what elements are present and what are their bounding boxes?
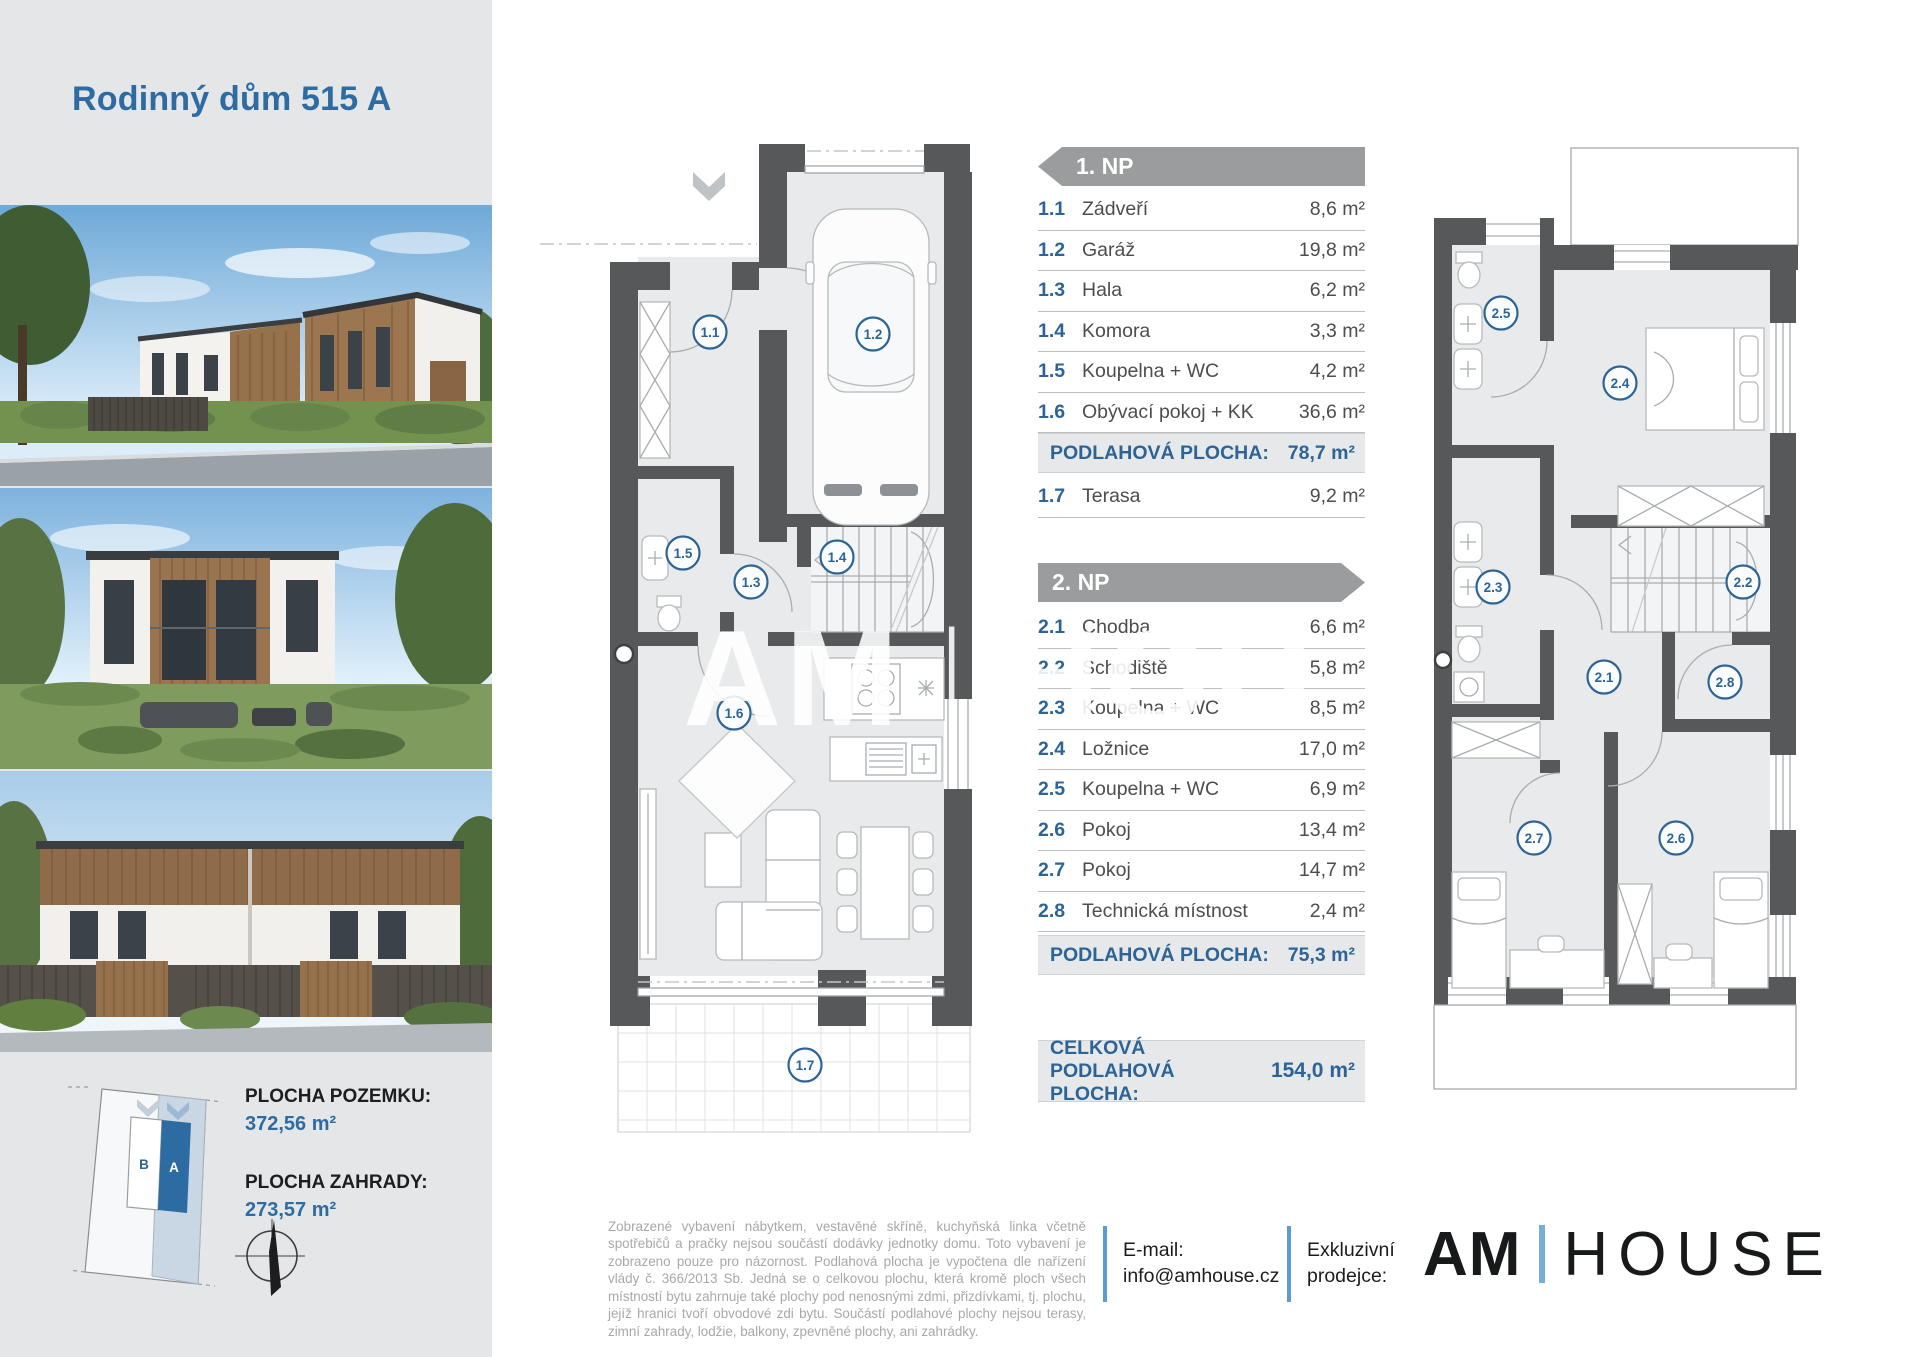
floor2-rows: 2.1Chodba6,6 m² 2.2Schodiště5,8 m² 2.3Ko…	[1038, 608, 1365, 932]
svg-text:1.2: 1.2	[864, 327, 883, 342]
svg-text:2.5: 2.5	[1492, 306, 1511, 321]
table-row: 2.5Koupelna + WC6,9 m²	[1038, 770, 1365, 811]
garden-area-value: 273,57 m²	[245, 1199, 336, 1222]
svg-text:2.6: 2.6	[1667, 831, 1686, 846]
svg-text:2.3: 2.3	[1484, 580, 1503, 595]
email-value: info@amhouse.cz	[1123, 1264, 1279, 1290]
room-badge: 1.6	[718, 697, 751, 730]
svg-text:2.4: 2.4	[1611, 376, 1630, 391]
table-row: 2.6Pokoj13,4 m²	[1038, 811, 1365, 852]
room-badge: 1.7	[789, 1049, 822, 1082]
table-row: 2.7Pokoj14,7 m²	[1038, 851, 1365, 892]
room-badge: 1.5	[667, 537, 700, 570]
floor2-total-row: PODLAHOVÁ PLOCHA: 75,3 m²	[1038, 935, 1365, 975]
svg-text:1.6: 1.6	[725, 706, 744, 721]
logo-house-text: HOUSE	[1563, 1219, 1833, 1290]
floor2-banner: 2. NP	[1038, 563, 1365, 602]
room-badge: 1.2	[857, 318, 890, 351]
table-row: 1.2Garáž19,8 m²	[1038, 231, 1365, 272]
email-block: E-mail: info@amhouse.cz	[1103, 1226, 1279, 1302]
chevron-down-icon	[693, 172, 725, 201]
room-badge: 1.1	[694, 316, 727, 349]
floor1-rows: 1.1Zádveří8,6 m² 1.2Garáž19,8 m² 1.3Hala…	[1038, 190, 1365, 433]
svg-text:1.3: 1.3	[742, 575, 761, 590]
room-badge: 2.3	[1477, 571, 1510, 604]
floor-plan-1-drawing: 1.1 1.2 1.3 1.4 1.5 1.6 1.7	[498, 112, 1016, 1152]
table-row: 1.3Hala6,2 m²	[1038, 271, 1365, 312]
table-row: 1.6Obývací pokoj + KK36,6 m²	[1038, 393, 1365, 434]
svg-text:2.1: 2.1	[1595, 670, 1614, 685]
table-row: 2.2Schodiště5,8 m²	[1038, 649, 1365, 690]
svg-text:1.1: 1.1	[701, 325, 720, 340]
floor1-banner-label: 1. NP	[1076, 153, 1134, 180]
logo-am-text: AM	[1423, 1219, 1521, 1290]
room-badge: 1.3	[735, 566, 768, 599]
disclaimer-text: Zobrazené vybavení nábytkem, vestavěné s…	[608, 1218, 1086, 1340]
room-badge: 2.2	[1727, 566, 1760, 599]
floor-plan-2-drawing: 2.1 2.2 2.3 2.4 2.5 2.6 2.7 2.8	[1426, 112, 1820, 1112]
compass-icon	[235, 1219, 305, 1296]
svg-text:1.4: 1.4	[828, 550, 847, 565]
svg-text:1.5: 1.5	[674, 546, 693, 561]
table-row: 2.1Chodba6,6 m²	[1038, 608, 1365, 649]
site-unit-b-label: B	[139, 1157, 149, 1172]
email-label: E-mail:	[1123, 1238, 1279, 1264]
room-badge: 2.1	[1588, 661, 1621, 694]
floor1-banner: 1. NP	[1038, 147, 1365, 186]
room-badge: 2.8	[1709, 666, 1742, 699]
logo-divider-bar	[1539, 1225, 1545, 1283]
table-row: 2.3Koupelna + WC8,5 m²	[1038, 689, 1365, 730]
car-top-view	[806, 209, 936, 525]
site-unit-a-label: A	[169, 1160, 179, 1175]
amhouse-logo: AM HOUSE	[1423, 1222, 1834, 1286]
table-row: 2.8Technická místnost2,4 m²	[1038, 892, 1365, 933]
table-row-terrace: 1.7 Terasa 9,2 m²	[1038, 477, 1365, 518]
svg-text:2.8: 2.8	[1716, 675, 1735, 690]
table-row: 1.4Komora3,3 m²	[1038, 312, 1365, 353]
svg-text:2.2: 2.2	[1734, 575, 1753, 590]
plot-area-value: 372,56 m²	[245, 1113, 336, 1136]
house-render-photo-street	[0, 205, 492, 486]
floor2-banner-label: 2. NP	[1052, 569, 1110, 596]
house-render-photo-garden	[0, 488, 492, 769]
room-badge: 2.7	[1518, 822, 1551, 855]
house-render-photo-front	[0, 771, 492, 1052]
table-row: 1.5Koupelna + WC4,2 m²	[1038, 352, 1365, 393]
room-badge: 1.4	[821, 541, 854, 574]
table-row: 1.1Zádveří8,6 m²	[1038, 190, 1365, 231]
total-area-row: CELKOVÁ PODLAHOVÁ PLOCHA: 154,0 m²	[1038, 1040, 1365, 1102]
page-title: Rodinný dům 515 A	[72, 80, 392, 119]
room-badge: 2.4	[1604, 367, 1637, 400]
room-badge: 2.6	[1660, 822, 1693, 855]
room-badge: 2.5	[1485, 297, 1518, 330]
exclusive-seller-block: Exkluzivní prodejce:	[1287, 1226, 1395, 1302]
floor1-total-row: PODLAHOVÁ PLOCHA: 78,7 m²	[1038, 433, 1365, 473]
svg-text:2.7: 2.7	[1525, 831, 1544, 846]
garden-area-label: PLOCHA ZAHRADY:	[245, 1172, 428, 1194]
table-row: 2.4Ložnice17,0 m²	[1038, 730, 1365, 771]
plot-area-label: PLOCHA POZEMKU:	[245, 1086, 431, 1108]
svg-text:1.7: 1.7	[796, 1058, 815, 1073]
